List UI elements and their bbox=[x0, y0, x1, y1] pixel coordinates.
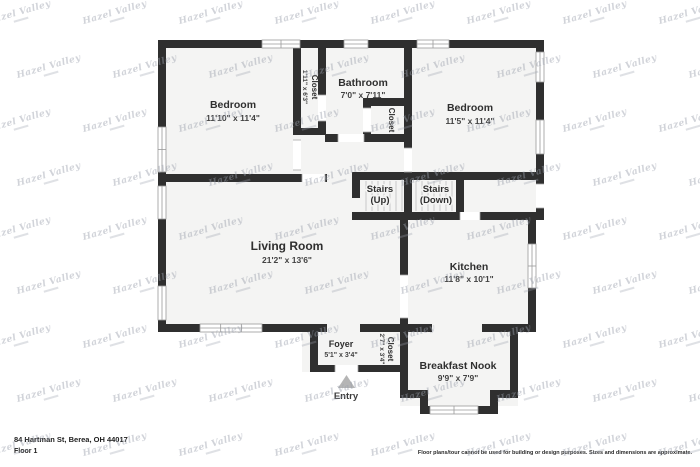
bathroom-dims: 7'0" x 7'11" bbox=[341, 90, 386, 100]
wall-stairs-divider bbox=[404, 176, 412, 216]
opening-corridor-kitchen bbox=[460, 212, 480, 220]
stairs-up-dir: (Up) bbox=[371, 195, 390, 206]
wall-stairs-left bbox=[352, 172, 360, 198]
door-bedroom-1 bbox=[293, 140, 301, 170]
entry-arrow-icon bbox=[338, 375, 355, 388]
wall-closet1-left bbox=[293, 48, 301, 135]
opening-living-kitchen bbox=[400, 275, 408, 318]
floor-label: Floor 1 bbox=[14, 448, 128, 455]
wall-nook-right bbox=[510, 324, 518, 398]
closet-3-label: Closet 2'7" x 3'4" bbox=[378, 334, 395, 365]
entry-threshold bbox=[335, 365, 358, 372]
kitchen-dims: 11'8" x 10'1" bbox=[444, 274, 493, 284]
closet-3-dims: 2'7" x 3'4" bbox=[378, 334, 385, 365]
living-room-name: Living Room bbox=[251, 239, 324, 253]
opening-hall-living bbox=[302, 174, 325, 182]
wall-foyer-bottom bbox=[310, 365, 335, 372]
footer-address-block: 84 Hartman St, Berea, OH 44017 Floor 1 bbox=[14, 435, 128, 455]
wall-divider-top bbox=[400, 212, 408, 275]
disclaimer: Floor plans/tour cannot be used for buil… bbox=[418, 450, 692, 456]
closet-1-name: Closet bbox=[310, 75, 319, 100]
door-bedroom-2 bbox=[404, 148, 412, 172]
wall-kitchen-bottom-r bbox=[482, 324, 536, 332]
living-room-dims: 21'2" x 13'6" bbox=[262, 255, 312, 265]
bedroom-1-name: Bedroom bbox=[210, 99, 256, 111]
closet-1-dims: 1'11" x 6'3" bbox=[301, 70, 308, 104]
bedroom-1-dims: 11'10" x 11'4" bbox=[206, 113, 260, 123]
floorplan-page: Bedroom 11'10" x 11'4" Closet 1'11" x 6'… bbox=[0, 0, 700, 467]
wall-kitchen-bottom-l bbox=[400, 324, 432, 332]
breakfast-nook-name: Breakfast Nook bbox=[419, 360, 496, 372]
stairs-up-name: Stairs bbox=[367, 184, 393, 195]
closet-3-name: Closet bbox=[386, 337, 395, 362]
door-closet-2 bbox=[363, 108, 371, 132]
door-corridor-exit bbox=[536, 184, 544, 208]
breakfast-nook-dims: 9'9" x 7'9" bbox=[438, 373, 478, 383]
wall-closet1-bottom bbox=[293, 128, 326, 135]
wall-foyer-left bbox=[310, 324, 318, 372]
foyer-dims: 5'1" x 3'4" bbox=[324, 352, 357, 359]
address: 84 Hartman St, Berea, OH 44017 bbox=[14, 435, 128, 444]
wall-stairs-top bbox=[352, 172, 536, 180]
wall-stairs-right bbox=[456, 180, 464, 216]
door-bathroom bbox=[338, 134, 364, 142]
bathroom-name: Bathroom bbox=[338, 77, 388, 89]
stairs-down-name: Stairs bbox=[423, 184, 449, 195]
floor-plan: Bedroom 11'10" x 11'4" Closet 1'11" x 6'… bbox=[0, 0, 700, 467]
entry-label: Entry bbox=[334, 391, 359, 402]
wall-stairs-bottom bbox=[352, 212, 536, 220]
closet-2-name: Closet bbox=[387, 108, 396, 133]
bedroom-2-dims: 11'5" x 11'4" bbox=[446, 116, 495, 126]
closet-2-label: Closet bbox=[387, 108, 396, 133]
stairs-down-dir: (Down) bbox=[420, 195, 452, 206]
foyer-name: Foyer bbox=[329, 339, 354, 349]
bedroom-2-name: Bedroom bbox=[447, 102, 493, 114]
kitchen-name: Kitchen bbox=[450, 261, 489, 273]
floor-bedroom-1 bbox=[166, 48, 302, 174]
